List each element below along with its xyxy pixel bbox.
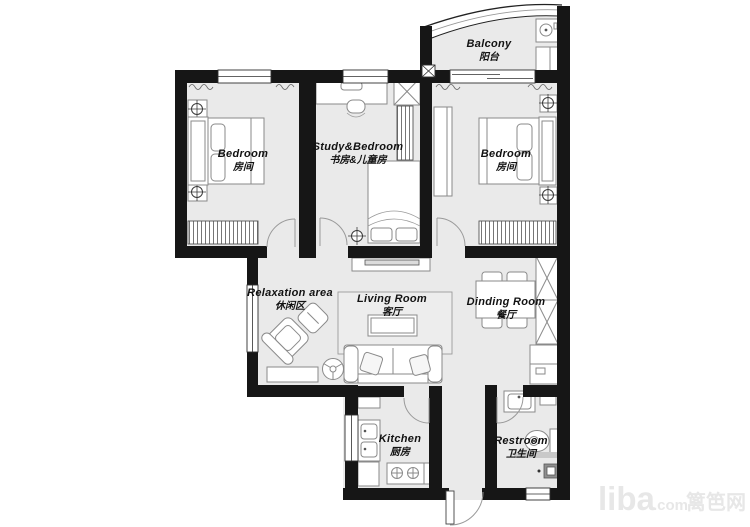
label-restroom-zh: 卫生间	[506, 448, 538, 460]
window	[345, 415, 358, 461]
pillow	[371, 228, 392, 241]
label-balcony-zh: 阳台	[479, 51, 500, 63]
floor-plan-svg: Bedroom 房间 Study&Bedroom 书房&儿童房 Balcony …	[0, 0, 750, 527]
washing-machine	[536, 19, 559, 42]
counter	[358, 397, 380, 408]
watermark-site: liba	[598, 480, 655, 517]
label-balcony: Balcony	[467, 38, 512, 50]
balcony-cabinet	[536, 47, 559, 71]
label-restroom: Restroom	[494, 435, 548, 447]
window	[343, 70, 388, 83]
label-living: Living Room	[357, 293, 427, 305]
desk-chair	[347, 100, 365, 113]
label-bedroom-left: Bedroom	[218, 148, 268, 160]
label-living-zh: 客厅	[382, 306, 404, 318]
pillow	[517, 124, 532, 151]
label-bedroom-right: Bedroom	[481, 148, 531, 160]
label-dining: Dinding Room	[467, 296, 546, 308]
pillow	[211, 124, 225, 151]
floor-plan-image: Bedroom 房间 Study&Bedroom 书房&儿童房 Balcony …	[0, 0, 750, 527]
label-relaxation-zh: 休闲区	[275, 300, 307, 312]
sofa-armrest	[344, 346, 358, 382]
small-window-icon	[422, 65, 435, 77]
stove	[387, 463, 424, 484]
label-kitchen: Kitchen	[379, 433, 421, 445]
label-relaxation: Relaxation area	[247, 287, 333, 299]
sofa-pillow	[409, 354, 431, 376]
label-bedroom-right-zh: 房间	[495, 161, 518, 173]
dresser	[479, 221, 556, 244]
wardrobe	[188, 221, 258, 244]
watermark-tld: .com	[653, 497, 688, 514]
sofa	[344, 345, 442, 383]
label-dining-zh: 餐厅	[496, 309, 518, 321]
bench	[267, 367, 318, 382]
floor-lamp-icon	[323, 359, 344, 380]
label-kitchen-zh: 厨房	[389, 446, 411, 458]
sofa-armrest	[428, 346, 442, 382]
label-study-zh: 书房&儿童房	[329, 154, 387, 166]
watermark: liba .com 篱笆网	[598, 480, 746, 517]
label-bedroom-left-zh: 房间	[232, 161, 255, 173]
window	[218, 70, 271, 83]
wardrobe	[434, 107, 452, 196]
counter	[358, 462, 379, 486]
hallway-floor	[442, 386, 485, 500]
kitchen-sink	[358, 420, 380, 461]
window	[526, 488, 550, 500]
watermark-cn: 篱笆网	[686, 490, 746, 514]
tv	[365, 260, 419, 265]
sliding-window	[450, 70, 535, 83]
label-study: Study&Bedroom	[313, 141, 404, 153]
pillow	[396, 228, 417, 241]
